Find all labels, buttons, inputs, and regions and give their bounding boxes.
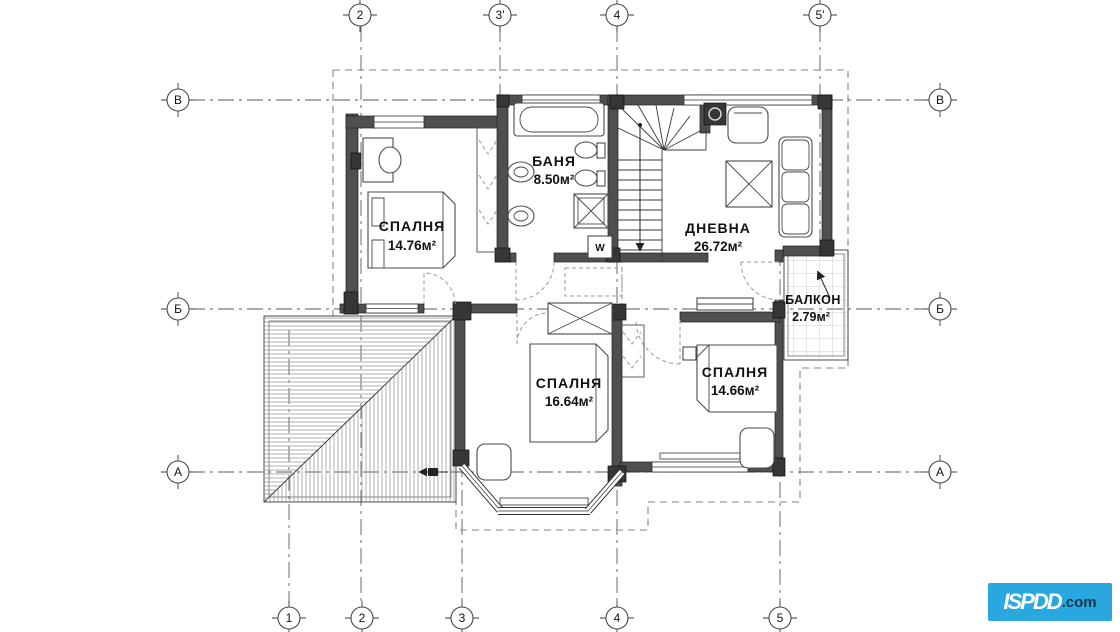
logo-tld: .com <box>1062 594 1097 611</box>
room-area-living: 26.72м² <box>694 239 743 254</box>
grid-bubble-bottom-4: 4 <box>600 601 634 632</box>
grid-bubble-right-v: В <box>923 83 957 117</box>
grid-bubble-top-3p: 3' <box>483 0 517 32</box>
room-area-balcony: 2.79м² <box>792 310 830 324</box>
window-hall-left <box>366 304 418 313</box>
toilet <box>575 142 597 158</box>
sideboard <box>697 298 753 310</box>
floor-plan-page: W <box>0 0 1120 632</box>
grid-bubble-top-4: 4 <box>600 0 634 32</box>
coffee-table <box>726 161 772 207</box>
window-bedroom3-bottom <box>652 462 748 472</box>
grid-bubble-right-b: Б <box>923 292 957 326</box>
room-label-bedroom1: СПАЛНЯ <box>379 218 445 234</box>
logo-brand: ISPDD <box>1003 589 1060 615</box>
sofa <box>779 137 812 237</box>
grid-bubble-left-v: В <box>161 83 195 117</box>
room-area-bathroom: 8.50м² <box>534 172 575 187</box>
door-bathroom <box>516 262 554 300</box>
window-sill-bay <box>500 498 588 505</box>
grid-bubble-left-a: А <box>161 455 195 489</box>
window-living-top <box>684 95 812 105</box>
door-bedroom1 <box>424 273 455 304</box>
svg-text:А: А <box>174 465 182 479</box>
svg-text:4: 4 <box>614 611 621 625</box>
svg-text:3': 3' <box>496 8 505 22</box>
bidet <box>575 170 597 186</box>
floor-plan-drawing: W <box>0 0 1120 632</box>
svg-text:Б: Б <box>936 302 944 316</box>
svg-text:1: 1 <box>286 611 293 625</box>
door-balcony <box>741 262 779 300</box>
svg-text:5': 5' <box>816 8 825 22</box>
room-label-bathroom: БАНЯ <box>532 153 576 169</box>
svg-text:2: 2 <box>359 611 366 625</box>
grid-bubble-left-b: Б <box>161 292 195 326</box>
room-label-living: ДНЕВНА <box>685 220 751 236</box>
grid-bubble-bottom-3: 3 <box>445 601 479 632</box>
room-area-bedroom2: 16.64м² <box>545 394 594 409</box>
room-label-bedroom3: СПАЛНЯ <box>702 364 768 380</box>
wardrobe-dashed <box>565 268 622 296</box>
floor-opening <box>548 303 612 334</box>
desk-chair <box>379 147 401 173</box>
room-area-bedroom1: 14.76м² <box>388 238 437 253</box>
svg-text:Б: Б <box>174 302 182 316</box>
grid-bubble-right-a: А <box>923 455 957 489</box>
armchair-living <box>728 107 768 143</box>
door-bedroom2 <box>517 313 548 344</box>
svg-text:4: 4 <box>614 8 621 22</box>
grid-bubble-bottom-5: 5 <box>763 601 797 632</box>
svg-text:В: В <box>936 93 944 107</box>
wardrobe-bedroom1 <box>477 128 499 252</box>
washing-machine-label: W <box>595 243 605 254</box>
grid-bubble-top-2: 2 <box>343 0 377 32</box>
svg-text:А: А <box>936 465 944 479</box>
svg-text:5: 5 <box>777 611 784 625</box>
sink-2 <box>508 206 534 226</box>
shower <box>574 194 608 228</box>
washing-machine: W <box>588 236 612 258</box>
nightstand <box>683 347 696 360</box>
sink-1 <box>508 162 534 182</box>
garage-roof <box>264 316 456 502</box>
svg-text:В: В <box>174 93 182 107</box>
grid-bubble-bottom-2: 2 <box>345 601 379 632</box>
room-label-balcony: БАЛКОН <box>785 293 841 307</box>
grid-bubble-bottom-1: 1 <box>272 601 306 632</box>
room-label-bedroom2: СПАЛНЯ <box>536 375 602 391</box>
grid-bubble-top-5p: 5' <box>803 0 837 32</box>
svg-text:3: 3 <box>459 611 466 625</box>
radiator <box>660 453 740 459</box>
window-bedroom1-top <box>374 116 424 128</box>
logo[interactable]: ISPDD .com <box>988 583 1112 621</box>
armchair-bedroom2 <box>477 444 511 480</box>
door-bedroom3 <box>636 320 680 364</box>
room-area-bedroom3: 14.66м² <box>711 383 760 398</box>
svg-text:2: 2 <box>357 8 364 22</box>
armchair-bedroom3 <box>740 428 774 468</box>
